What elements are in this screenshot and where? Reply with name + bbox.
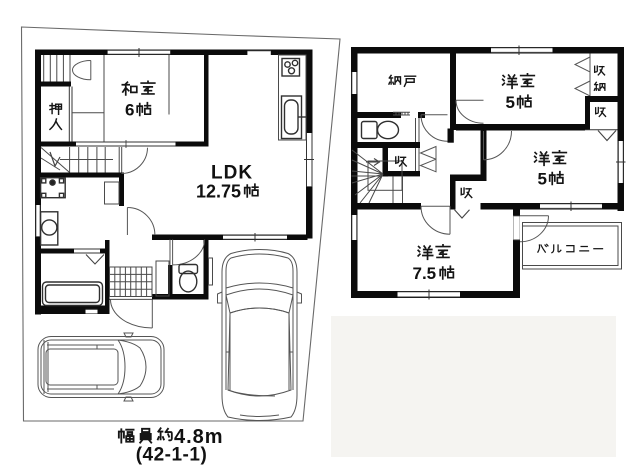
svg-text:6: 6 [125,101,134,120]
svg-text:12.75: 12.75 [196,182,241,202]
svg-text:7.5: 7.5 [413,264,437,283]
svg-text:5: 5 [538,170,547,189]
svg-text:(42-1-1): (42-1-1) [136,445,208,465]
svg-text:5: 5 [506,93,515,112]
svg-text:LDK: LDK [211,163,253,184]
